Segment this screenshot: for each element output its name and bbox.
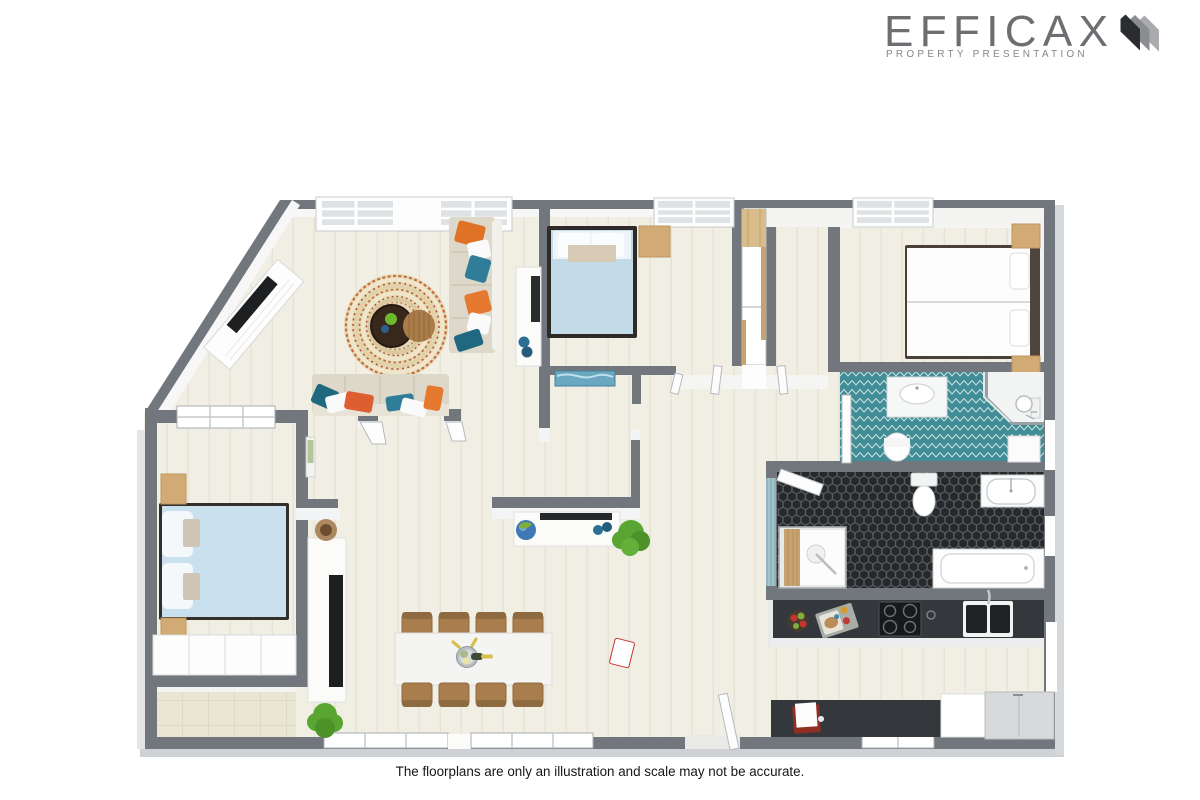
svg-text:PROPERTY PRESENTATION: PROPERTY PRESENTATION [886, 49, 1090, 60]
